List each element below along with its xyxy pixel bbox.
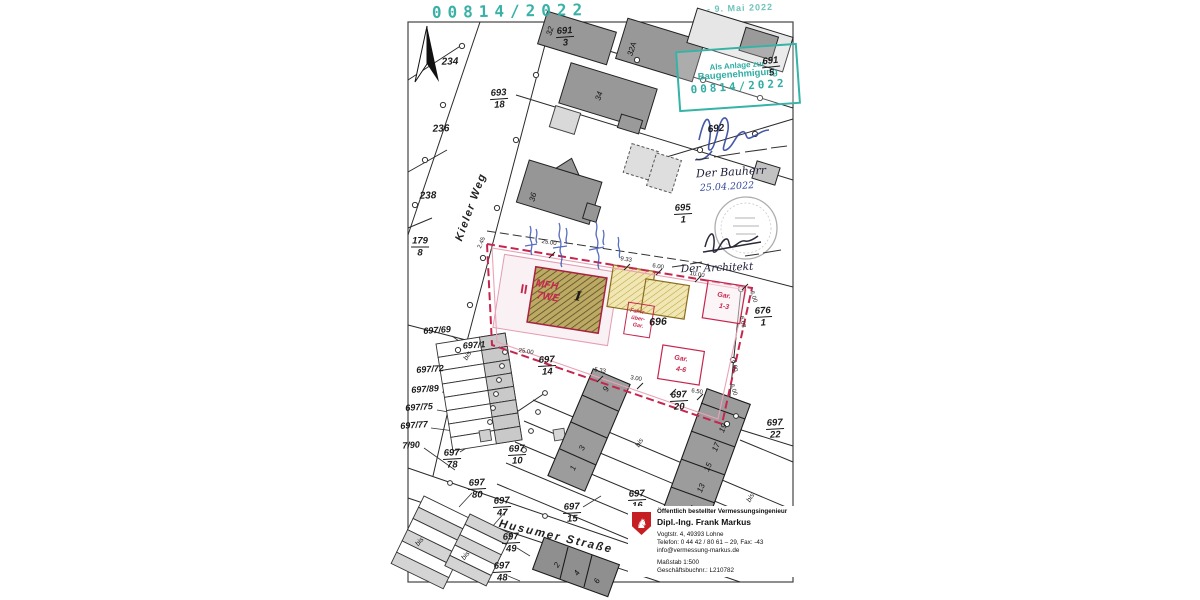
scanned-site-plan-page: 00814/2022 - 9. Mai 2022 Als Anlage zur … xyxy=(0,0,1200,600)
surveyor-info-box: ♞ Öffentlich bestellter Vermessungsingen… xyxy=(628,506,798,577)
horse-glyph: ♞ xyxy=(636,517,648,530)
fraction-top: 697 xyxy=(562,501,580,514)
parcel-697-20: 69720 xyxy=(669,389,688,413)
parcel-697-75: 697/75 xyxy=(405,401,433,413)
fraction-top: 179 xyxy=(411,236,429,248)
parcel-697-90: 7/90 xyxy=(402,439,420,450)
fraction-top: 697 xyxy=(627,488,645,501)
garage-1-3-range: 1-3 xyxy=(718,303,729,311)
lower-saxony-shield-icon: ♞ xyxy=(632,512,651,535)
fraction-bottom: 8 xyxy=(417,248,422,259)
parcel-697-10: 69710 xyxy=(507,443,526,467)
fraction-top: 676 xyxy=(753,305,771,318)
parcel-697-14: 69714 xyxy=(537,354,556,378)
parcel-697-47: 69747 xyxy=(492,495,511,519)
surveyor-name: Dipl.-Ing. Frank Markus xyxy=(657,517,787,528)
fraction-bottom: 15 xyxy=(567,513,578,525)
garage-4-6-range: 4-6 xyxy=(675,366,686,374)
fraction-top: 697 xyxy=(537,354,555,367)
parcel-697-72: 697/72 xyxy=(416,363,444,375)
fraction-bottom: 22 xyxy=(770,429,781,441)
fraction-bottom: 1 xyxy=(680,214,686,225)
fraction-bottom: 3 xyxy=(562,37,568,48)
book-number: Geschäftsbuchnr.: L210782 xyxy=(657,567,787,575)
surveyor-email: info@vermessung-markus.de xyxy=(657,547,787,555)
parcel-697-49: 69749 xyxy=(501,531,520,555)
parcel-676-1: 6761 xyxy=(753,305,772,329)
fraction-top: 691 xyxy=(555,25,574,38)
site-plan-linework xyxy=(0,0,1200,600)
fraction-bottom: 48 xyxy=(497,572,508,584)
parcel-697-77: 697/77 xyxy=(400,419,428,431)
fraction-bottom: 49 xyxy=(506,543,517,555)
fraction-bottom: 5 xyxy=(768,67,774,78)
parcel-236: 236 xyxy=(432,123,449,135)
parcel-696: 696 xyxy=(649,316,667,329)
fraction-bottom: 10 xyxy=(512,455,523,467)
surveyor-title: Öffentlich bestellter Vermessungsingenie… xyxy=(657,508,787,516)
fraction-bottom: 1 xyxy=(760,317,766,328)
fraction-top: 697 xyxy=(507,443,525,456)
parcel-697-48: 69748 xyxy=(492,560,511,584)
fraction-bottom: 47 xyxy=(497,507,508,519)
fraction-top: 691 xyxy=(761,55,780,69)
parcel-697-78: 69778 xyxy=(442,447,461,471)
parcel-692: 692 xyxy=(707,123,725,136)
surveyor-phone: Telefon: 0 44 42 / 80 61 – 29, Fax: -43 xyxy=(657,539,787,547)
fraction-top: 693 xyxy=(489,87,508,100)
fraction-top: 697 xyxy=(669,389,687,402)
parcel-697-1: 697/1 xyxy=(462,339,485,351)
fraction-bottom: 20 xyxy=(674,401,685,413)
fraction-bottom: 80 xyxy=(472,489,483,501)
fraction-bottom: 78 xyxy=(447,459,458,471)
map-scale: Maßstab 1:500 xyxy=(657,559,787,567)
fraction-top: 697 xyxy=(492,495,510,508)
parcel-697-15: 69715 xyxy=(562,501,581,525)
fraction-top: 697 xyxy=(492,560,510,573)
survey-square xyxy=(479,429,492,442)
registry-number-stamp: 00814/2022 xyxy=(432,0,589,22)
parcel-691-5: 6915 xyxy=(761,55,781,80)
parcel-697-80: 69780 xyxy=(467,477,486,501)
parcel-693-18: 69318 xyxy=(489,87,508,111)
parcel-697-22: 69722 xyxy=(765,417,784,441)
parcel-695-1: 6951 xyxy=(673,202,692,226)
parcel-697-89: 697/89 xyxy=(411,383,439,395)
fraction-bottom: 18 xyxy=(494,99,505,111)
surveyor-address: Vogtstr. 4, 49393 Lohne xyxy=(657,531,787,539)
parcel-238: 238 xyxy=(419,190,436,202)
fraction-bottom: 14 xyxy=(542,366,553,378)
parcel-697-69: 697/69 xyxy=(423,324,451,336)
fraction-top: 695 xyxy=(673,202,691,215)
building-permit-stamp: Als Anlage zur Baugenehmigung 00814/2022 xyxy=(675,43,801,112)
fraction-top: 697 xyxy=(501,531,519,544)
parcel-179-8: 1798 xyxy=(411,236,429,259)
parcel-691-3: 6913 xyxy=(555,25,574,49)
fraction-top: 697 xyxy=(765,417,783,430)
parcel-234: 234 xyxy=(441,56,458,68)
fraction-top: 697 xyxy=(442,447,460,460)
fraction-top: 697 xyxy=(467,477,485,490)
